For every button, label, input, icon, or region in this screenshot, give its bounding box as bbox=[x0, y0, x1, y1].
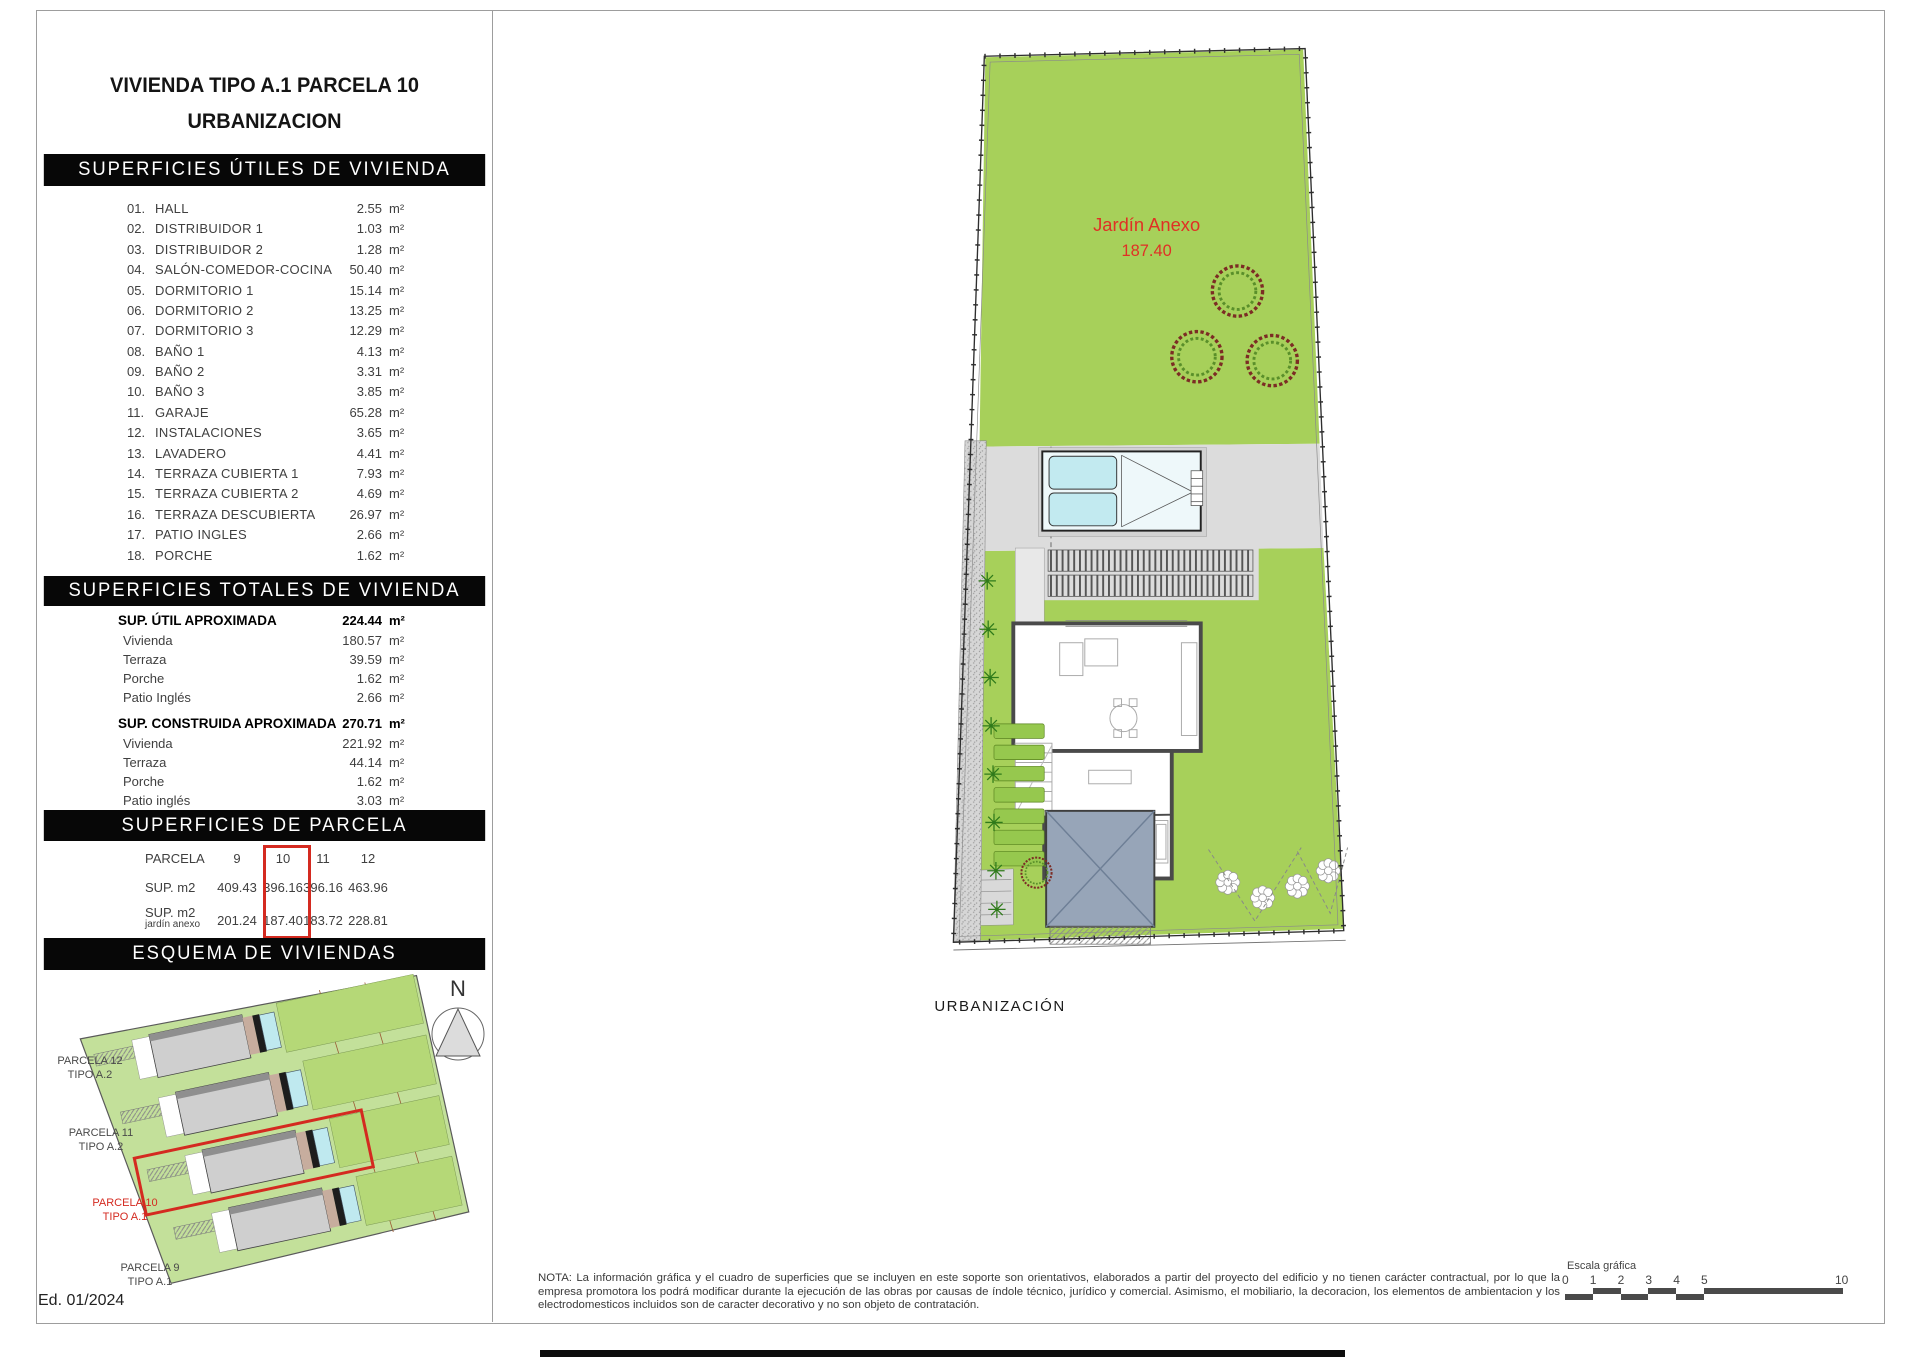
room-number: 16. bbox=[127, 505, 145, 525]
room-row: 05. DORMITORIO 1 15.14 m² bbox=[37, 281, 492, 301]
site-plan-drawing: Jardín Anexo 187.40 bbox=[930, 35, 1400, 1035]
esquema-label-parcela-10: PARCELA 10TIPO A.1 bbox=[70, 1196, 180, 1224]
room-row: 15. TERRAZA CUBIERTA 2 4.69 m² bbox=[37, 484, 492, 504]
room-number: 05. bbox=[127, 281, 145, 301]
room-area: 2.55 bbox=[262, 199, 382, 219]
panel-divider-line bbox=[492, 10, 493, 1322]
total-sub-row: Patio inglés 3.03 m² bbox=[37, 791, 492, 810]
room-row: 07. DORMITORIO 3 12.29 m² bbox=[37, 321, 492, 341]
room-number: 11. bbox=[127, 403, 144, 423]
total-title: SUP. ÚTIL APROXIMADA bbox=[118, 611, 277, 630]
scale-segment bbox=[1676, 1294, 1704, 1300]
room-row: 08. BAÑO 1 4.13 m² bbox=[37, 342, 492, 362]
room-unit: m² bbox=[389, 219, 404, 239]
total-sub-label: Vivienda bbox=[123, 631, 173, 650]
room-row: 01. HALL 2.55 m² bbox=[37, 199, 492, 219]
room-name: DISTRIBUIDOR 2 bbox=[155, 240, 263, 260]
room-area: 1.28 bbox=[262, 240, 382, 260]
legal-note: NOTA: La información gráfica y el cuadro… bbox=[538, 1272, 1560, 1313]
room-name: BAÑO 3 bbox=[155, 382, 204, 402]
room-name: PORCHE bbox=[155, 546, 212, 566]
total-sub-label: Vivienda bbox=[123, 734, 173, 753]
room-name: HALL bbox=[155, 199, 189, 219]
room-row: 03. DISTRIBUIDOR 2 1.28 m² bbox=[37, 240, 492, 260]
room-unit: m² bbox=[389, 403, 404, 423]
room-number: 03. bbox=[127, 240, 145, 260]
header-superficies-parcela: SUPERFICIES DE PARCELA bbox=[44, 810, 485, 841]
header-superficies-totales: SUPERFICIES TOTALES DE VIVIENDA bbox=[44, 576, 485, 606]
room-area: 12.29 bbox=[262, 321, 382, 341]
total-title-row: SUP. ÚTIL APROXIMADA 224.44 m² bbox=[37, 611, 492, 630]
graphic-scale: Escala gráfica 01234510 bbox=[1565, 1260, 1855, 1312]
parcela-number: 12 bbox=[338, 851, 398, 866]
room-name: BAÑO 1 bbox=[155, 342, 204, 362]
room-area: 3.65 bbox=[262, 423, 382, 443]
scale-label: Escala gráfica bbox=[1567, 1260, 1636, 1272]
room-row: 17. PATIO INGLES 2.66 m² bbox=[37, 525, 492, 545]
total-sub-value: 1.62 bbox=[262, 772, 382, 791]
room-number: 07. bbox=[127, 321, 145, 341]
north-compass: N bbox=[418, 968, 498, 1072]
room-row: 06. DORMITORIO 2 13.25 m² bbox=[37, 301, 492, 321]
room-number: 15. bbox=[127, 484, 145, 504]
room-area: 4.13 bbox=[262, 342, 382, 362]
total-value: 270.71 bbox=[262, 714, 382, 733]
total-unit: m² bbox=[389, 714, 405, 733]
scale-tick: 1 bbox=[1590, 1273, 1597, 1287]
room-unit: m² bbox=[389, 382, 404, 402]
title-block-bar bbox=[540, 1350, 1345, 1357]
room-area: 1.03 bbox=[262, 219, 382, 239]
room-number: 04. bbox=[127, 260, 145, 280]
room-area: 4.41 bbox=[262, 444, 382, 464]
room-unit: m² bbox=[389, 484, 404, 504]
scale-tick: 4 bbox=[1673, 1273, 1680, 1287]
total-sub-row: Vivienda 221.92 m² bbox=[37, 734, 492, 753]
north-letter: N bbox=[450, 976, 466, 1001]
room-row: 02. DISTRIBUIDOR 1 1.03 m² bbox=[37, 219, 492, 239]
room-area: 15.14 bbox=[262, 281, 382, 301]
parcela-sup-jardin: 228.81 bbox=[338, 913, 398, 928]
scale-segment bbox=[1621, 1294, 1649, 1300]
room-number: 18. bbox=[127, 546, 145, 566]
room-number: 08. bbox=[127, 342, 145, 362]
room-unit: m² bbox=[389, 342, 404, 362]
esquema-label-parcela-9: PARCELA 9TIPO A.1 bbox=[95, 1261, 205, 1289]
room-area: 2.66 bbox=[262, 525, 382, 545]
total-sub-row: Porche 1.62 m² bbox=[37, 669, 492, 688]
total-sub-row: Patio Inglés 2.66 m² bbox=[37, 688, 492, 707]
urbanizacion-label: URBANIZACIÓN bbox=[900, 998, 1100, 1015]
parcela-10-highlight-box bbox=[263, 845, 311, 939]
total-sub-unit: m² bbox=[389, 734, 404, 753]
room-name: DORMITORIO 3 bbox=[155, 321, 254, 341]
garden-label: Jardín Anexo bbox=[1093, 214, 1200, 235]
room-unit: m² bbox=[389, 362, 404, 382]
room-number: 06. bbox=[127, 301, 145, 321]
total-title-row: SUP. CONSTRUIDA APROXIMADA 270.71 m² bbox=[37, 714, 492, 733]
pergola-slats bbox=[1048, 550, 1253, 571]
room-unit: m² bbox=[389, 281, 404, 301]
total-sub-unit: m² bbox=[389, 669, 404, 688]
room-row: 16. TERRAZA DESCUBIERTA 26.97 m² bbox=[37, 505, 492, 525]
scale-segment bbox=[1704, 1288, 1843, 1294]
room-row: 10. BAÑO 3 3.85 m² bbox=[37, 382, 492, 402]
room-number: 10. bbox=[127, 382, 145, 402]
scale-segment bbox=[1565, 1294, 1593, 1300]
total-sub-unit: m² bbox=[389, 791, 404, 810]
compass-needle-icon bbox=[436, 1009, 480, 1056]
room-area: 4.69 bbox=[262, 484, 382, 504]
room-name: INSTALACIONES bbox=[155, 423, 262, 443]
total-sub-row: Terraza 39.59 m² bbox=[37, 650, 492, 669]
room-name: DORMITORIO 1 bbox=[155, 281, 254, 301]
room-unit: m² bbox=[389, 321, 404, 341]
room-name: LAVADERO bbox=[155, 444, 226, 464]
utiles-rows: 01. HALL 2.55 m² 02. DISTRIBUIDOR 1 1.03… bbox=[37, 199, 492, 571]
room-row: 13. LAVADERO 4.41 m² bbox=[37, 444, 492, 464]
room-unit: m² bbox=[389, 525, 404, 545]
room-row: 04. SALÓN-COMEDOR-COCINA 50.40 m² bbox=[37, 260, 492, 280]
parcela-row-label: PARCELA bbox=[145, 851, 205, 866]
room-area: 26.97 bbox=[262, 505, 382, 525]
scale-segment bbox=[1648, 1288, 1676, 1294]
total-sub-row: Vivienda 180.57 m² bbox=[37, 631, 492, 650]
edition-label: Ed. 01/2024 bbox=[38, 1292, 124, 1310]
parcela-sup-m2: 463.96 bbox=[338, 880, 398, 895]
room-name: PATIO INGLES bbox=[155, 525, 247, 545]
room-number: 14. bbox=[127, 464, 145, 484]
scale-tick: 5 bbox=[1701, 1273, 1708, 1287]
scale-tick: 0 bbox=[1562, 1273, 1569, 1287]
plan-sheet: { "left_panel": { "title_line1": "VIVIEN… bbox=[0, 0, 1920, 1357]
room-name: DORMITORIO 2 bbox=[155, 301, 254, 321]
total-sub-label: Porche bbox=[123, 772, 164, 791]
garage bbox=[1046, 811, 1154, 927]
totales-rows: SUP. ÚTIL APROXIMADA 224.44 m² Vivienda … bbox=[37, 611, 492, 811]
esquema-label-parcela-12: PARCELA 12TIPO A.2 bbox=[35, 1054, 145, 1082]
room-unit: m² bbox=[389, 301, 404, 321]
scale-segment bbox=[1593, 1288, 1621, 1294]
scale-tick: 3 bbox=[1645, 1273, 1652, 1287]
total-sub-unit: m² bbox=[389, 650, 404, 669]
page-title-line2: URBANIZACION bbox=[48, 110, 480, 134]
header-esquema-viviendas: ESQUEMA DE VIVIENDAS bbox=[44, 938, 485, 970]
room-row: 12. INSTALACIONES 3.65 m² bbox=[37, 423, 492, 443]
room-number: 01. bbox=[127, 199, 145, 219]
supm2-row-label: SUP. m2 bbox=[145, 880, 195, 895]
total-sub-value: 39.59 bbox=[262, 650, 382, 669]
room-area: 3.31 bbox=[262, 362, 382, 382]
room-unit: m² bbox=[389, 423, 404, 443]
room-unit: m² bbox=[389, 240, 404, 260]
room-name: DISTRIBUIDOR 1 bbox=[155, 219, 263, 239]
room-area: 1.62 bbox=[262, 546, 382, 566]
jardin-row-label1: SUP. m2 bbox=[145, 905, 195, 920]
scale-tick: 10 bbox=[1835, 1273, 1848, 1287]
room-number: 17. bbox=[127, 525, 145, 545]
room-unit: m² bbox=[389, 464, 404, 484]
garden-area-value: 187.40 bbox=[1122, 242, 1172, 260]
jardin-row-label2: jardín anexo bbox=[145, 919, 200, 930]
room-row: 14. TERRAZA CUBIERTA 1 7.93 m² bbox=[37, 464, 492, 484]
total-sub-value: 180.57 bbox=[262, 631, 382, 650]
room-number: 13. bbox=[127, 444, 145, 464]
total-sub-value: 1.62 bbox=[262, 669, 382, 688]
room-name: GARAJE bbox=[155, 403, 209, 423]
room-unit: m² bbox=[389, 199, 404, 219]
room-unit: m² bbox=[389, 260, 404, 280]
total-sub-unit: m² bbox=[389, 688, 404, 707]
room-number: 12. bbox=[127, 423, 145, 443]
room-unit: m² bbox=[389, 546, 404, 566]
total-sub-label: Porche bbox=[123, 669, 164, 688]
total-sub-value: 3.03 bbox=[262, 791, 382, 810]
total-sub-row: Terraza 44.14 m² bbox=[37, 753, 492, 772]
total-sub-unit: m² bbox=[389, 753, 404, 772]
room-row: 09. BAÑO 2 3.31 m² bbox=[37, 362, 492, 382]
total-sub-unit: m² bbox=[389, 772, 404, 791]
porch bbox=[1050, 927, 1150, 944]
scale-tick: 2 bbox=[1618, 1273, 1625, 1287]
room-unit: m² bbox=[389, 444, 404, 464]
hedge-row bbox=[994, 724, 1044, 866]
pool-steps bbox=[1191, 471, 1203, 506]
room-name: BAÑO 2 bbox=[155, 362, 204, 382]
total-value: 224.44 bbox=[262, 611, 382, 630]
room-area: 65.28 bbox=[262, 403, 382, 423]
total-sub-value: 221.92 bbox=[262, 734, 382, 753]
total-sub-label: Patio Inglés bbox=[123, 688, 191, 707]
pool bbox=[1038, 448, 1206, 537]
room-row: 11. GARAJE 65.28 m² bbox=[37, 403, 492, 423]
room-row: 18. PORCHE 1.62 m² bbox=[37, 546, 492, 566]
page-title-line1: VIVIENDA TIPO A.1 PARCELA 10 bbox=[48, 74, 480, 98]
total-sub-label: Terraza bbox=[123, 753, 166, 772]
esquema-label-parcela-11: PARCELA 11TIPO A.2 bbox=[46, 1126, 156, 1154]
total-sub-unit: m² bbox=[389, 631, 404, 650]
total-sub-row: Porche 1.62 m² bbox=[37, 772, 492, 791]
total-sub-value: 44.14 bbox=[262, 753, 382, 772]
total-unit: m² bbox=[389, 611, 405, 630]
header-superficies-utiles: SUPERFICIES ÚTILES DE VIVIENDA bbox=[44, 154, 485, 186]
total-sub-label: Terraza bbox=[123, 650, 166, 669]
gravel-strip bbox=[953, 441, 986, 941]
total-sub-value: 2.66 bbox=[262, 688, 382, 707]
room-number: 09. bbox=[127, 362, 145, 382]
room-area: 50.40 bbox=[262, 260, 382, 280]
room-area: 7.93 bbox=[262, 464, 382, 484]
total-sub-label: Patio inglés bbox=[123, 791, 190, 810]
room-area: 3.85 bbox=[262, 382, 382, 402]
room-number: 02. bbox=[127, 219, 145, 239]
room-area: 13.25 bbox=[262, 301, 382, 321]
pergola-slats bbox=[1048, 575, 1253, 596]
room-unit: m² bbox=[389, 505, 404, 525]
